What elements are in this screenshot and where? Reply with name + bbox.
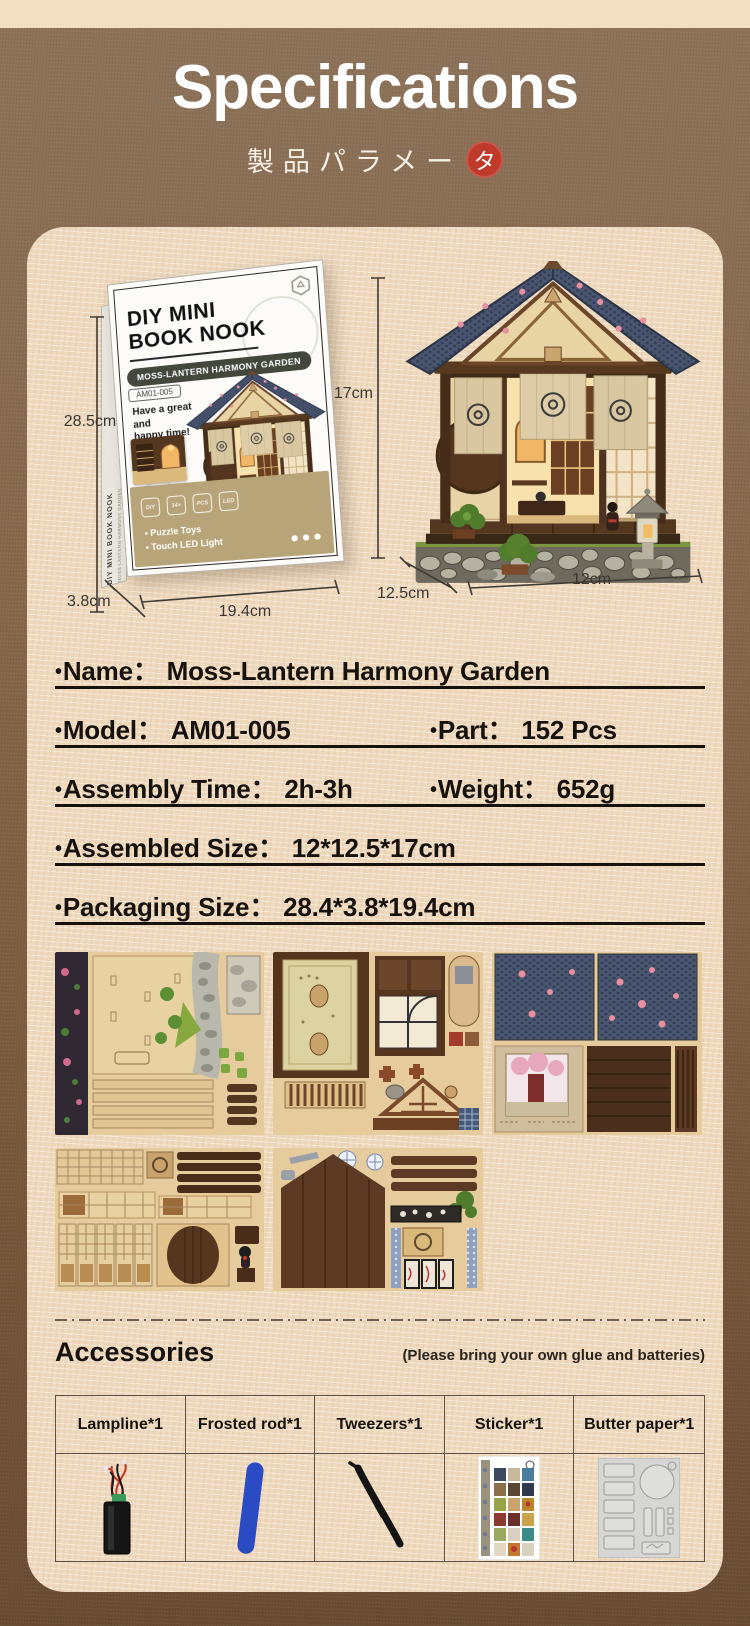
page-subtitle: 製品パラメー タ [0,140,750,179]
rule [55,745,705,748]
accessories-note: (Please bring your own glue and batterie… [402,1347,705,1364]
accessories-heading: Accessories [55,1337,214,1368]
accessory-header-butter-paper: Butter paper*1 [574,1396,704,1454]
carousel-dots-icon [291,533,321,541]
rule [55,863,705,866]
accessories-table: Lampline*1 Frosted rod*1 Tweezers*1 Stic… [55,1395,705,1562]
box-height-label: 28.5cm [47,413,133,431]
age-14-icon: 14+ [166,495,186,516]
spec-row-time-weight: •Assembly Time：2h-3h •Weight：652g [55,769,705,801]
rule [55,686,705,689]
pieces-icon: PCS [192,493,212,514]
box-icon-row: DIY 14+ PCS LED [140,491,239,518]
spec-row-model-part: •Model：AM01-005 •Part：152 Pcs [55,710,705,742]
accessory-header-frosted-rod: Frosted rod*1 [186,1396,316,1454]
rule [55,804,705,807]
subtitle-japanese: 製品パラメー [247,140,462,179]
house-depth-label: 12.5cm [377,585,443,603]
parts-sheet-shoji-doors [55,1148,264,1291]
accessory-header-tweezers: Tweezers*1 [315,1396,445,1454]
accessory-photo-lampline [56,1454,186,1561]
parts-sheet-gable-screens [273,1148,483,1291]
spec-row-packaging-size: •Packaging Size：28.4*3.8*19.4cm [55,887,705,919]
accessory-photo-sticker [445,1454,575,1561]
interior-inset-photo [130,434,187,485]
spec-row-assembled-size: •Assembled Size：12*12.5*17cm [55,828,705,860]
brand-hex-logo-icon [290,274,312,297]
accessory-header-lampline: Lampline*1 [56,1396,186,1454]
led-icon: LED [218,491,239,512]
accessory-photo-tweezers [315,1454,445,1561]
product-box-photo: DIY MINI BOOK NOOK MOSS-LANTERN HARMONY … [101,283,371,603]
diy-kit-icon: DIY [140,497,160,518]
box-depth-label: 3.8cm [67,593,131,611]
dashed-divider [55,1319,705,1321]
accessory-photo-frosted-rod [186,1454,316,1561]
box-features: • Puzzle Toys • Touch LED Light [144,520,223,555]
parts-sheet-garden-base [55,952,264,1135]
accessory-photo-butter-paper [574,1454,704,1561]
box-bottom-band: DIY 14+ PCS LED • Puzzle Toys • Touch LE… [130,471,335,568]
parts-sheet-tatami-window [273,952,483,1135]
spec-row-name: •Name：Moss-Lantern Harmony Garden [55,651,705,683]
spec-panel: DIY MINI BOOK NOOK MOSS-LANTERN HARMONY … [27,227,723,1592]
rule [55,922,705,925]
product-box-front: DIY MINI BOOK NOOK MOSS-LANTERN HARMONY … [107,259,345,577]
box-width-label: 19.4cm [195,603,295,621]
house-height-label: 17cm [323,385,373,403]
red-seal-stamp-icon: タ [466,141,503,178]
assembled-house-photo [399,261,707,589]
accessories-header: Accessories (Please bring your own glue … [55,1337,705,1371]
specifications-infographic: Specifications 製品パラメー タ DIY MINI BOOK NO… [0,0,750,1626]
accessory-header-sticker: Sticker*1 [445,1396,575,1454]
page-title: Specifications [0,52,750,123]
house-width-label: 12cm [572,571,628,589]
model-tag: AM01-005 [128,384,181,402]
parts-sheet-roof-tiles [492,952,702,1135]
